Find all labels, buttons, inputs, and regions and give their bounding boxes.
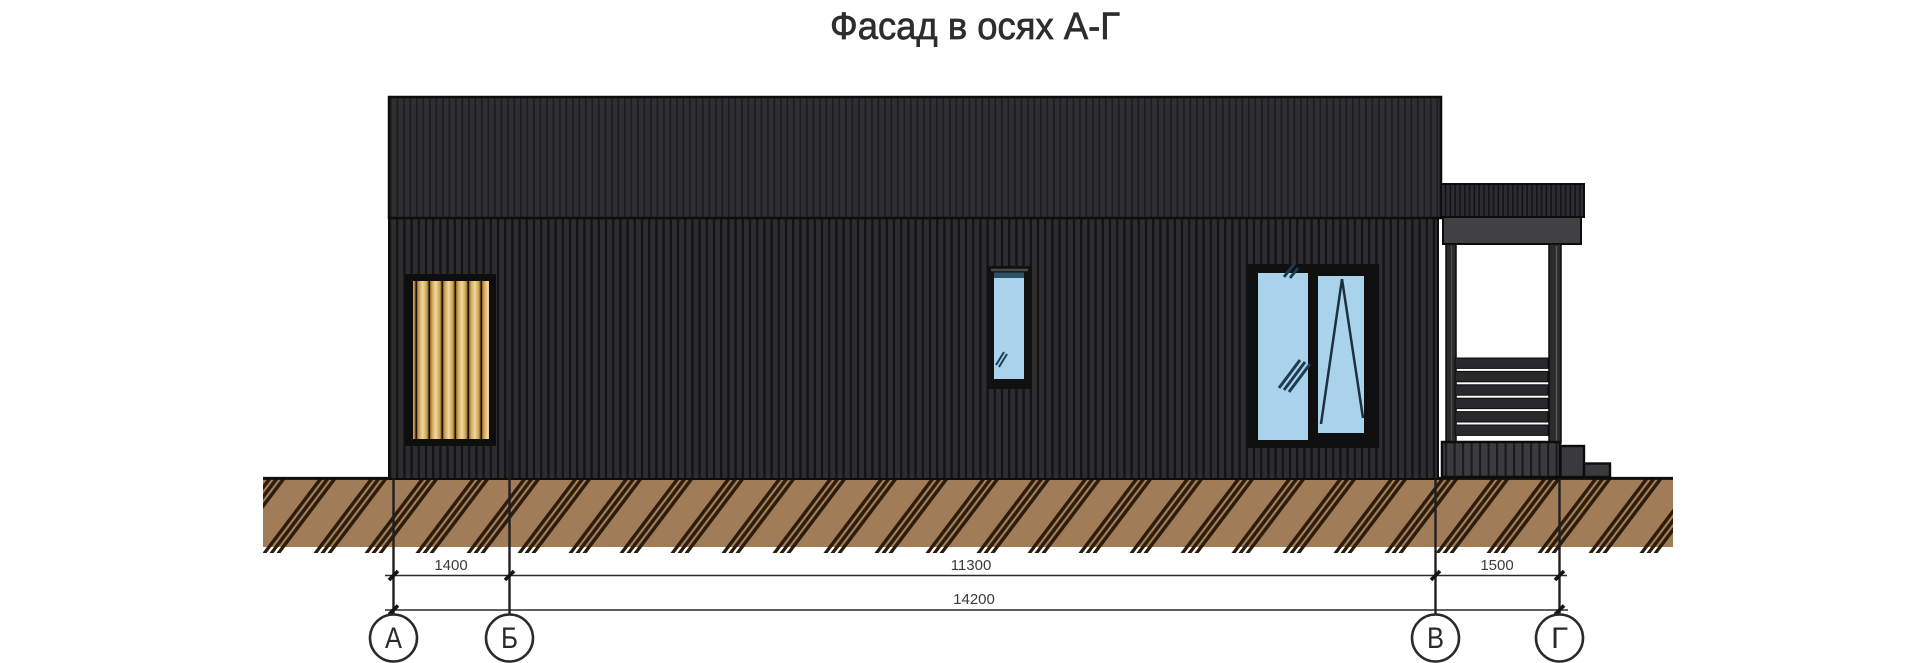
- svg-text:1400: 1400: [434, 557, 467, 574]
- svg-text:1500: 1500: [1480, 557, 1513, 574]
- svg-text:Г: Г: [1551, 622, 1568, 655]
- svg-text:Б: Б: [501, 622, 518, 655]
- svg-text:Фасад в осях А-Г: Фасад в осях А-Г: [830, 6, 1120, 48]
- svg-text:11300: 11300: [951, 557, 992, 574]
- svg-text:В: В: [1427, 622, 1444, 655]
- svg-text:14200: 14200: [953, 591, 995, 608]
- svg-text:А: А: [385, 622, 402, 655]
